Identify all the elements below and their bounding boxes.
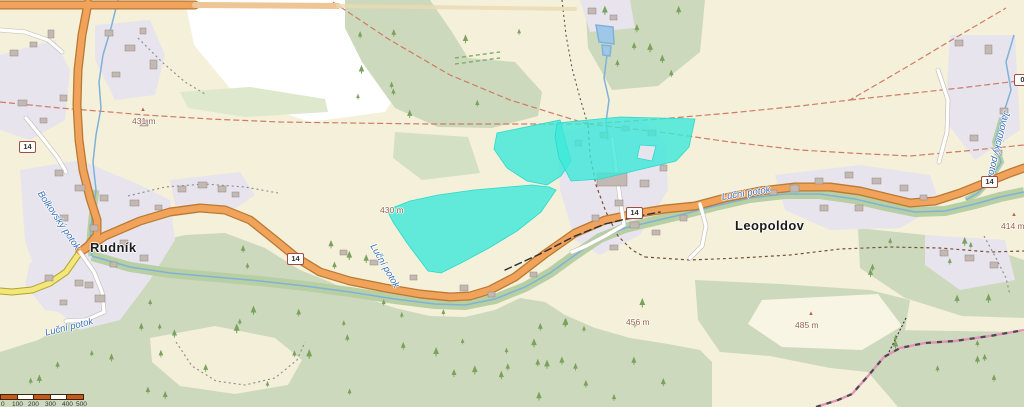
scale-label: 100: [12, 401, 23, 407]
building: [530, 272, 537, 277]
building: [40, 118, 47, 123]
map-render-layer: [0, 0, 1024, 407]
scale-label: 200: [28, 401, 39, 407]
building: [1000, 108, 1008, 114]
building: [660, 165, 667, 171]
building: [652, 230, 660, 235]
building: [815, 178, 823, 184]
building: [95, 295, 105, 302]
building: [100, 195, 108, 201]
scale-label: 400: [62, 401, 73, 407]
building: [75, 185, 85, 191]
building: [410, 275, 417, 280]
building: [232, 192, 239, 197]
building: [845, 172, 853, 178]
building: [75, 280, 83, 286]
road-ref-badge: 14: [287, 253, 304, 265]
building: [965, 255, 974, 261]
scale-label: 0: [1, 401, 5, 407]
building: [990, 262, 998, 268]
building: [610, 15, 617, 20]
building: [198, 182, 207, 188]
building: [820, 205, 828, 211]
road-ref-badge-clipped: 0: [1014, 74, 1024, 86]
scale-bar-segment: [51, 395, 68, 399]
building: [460, 285, 468, 291]
building: [85, 282, 93, 288]
building: [370, 260, 378, 265]
scale-bar-segment: [34, 395, 51, 399]
building: [45, 275, 53, 281]
building: [790, 185, 799, 192]
building: [30, 42, 37, 47]
building: [588, 8, 596, 14]
building: [60, 300, 67, 305]
scale-label: 500: [76, 401, 87, 407]
scale-bar-segment: [1, 395, 18, 399]
building: [140, 120, 148, 126]
building: [872, 178, 881, 184]
building: [112, 72, 120, 77]
building: [125, 45, 135, 51]
building: [900, 185, 908, 191]
map-canvas[interactable]: Rudník Leopoldov Bolkovský potok Luční p…: [0, 0, 1024, 407]
road-ref-badge: 14: [981, 176, 998, 188]
building: [488, 292, 495, 297]
building: [940, 250, 948, 256]
building: [640, 180, 649, 187]
building: [155, 205, 162, 210]
building: [995, 150, 1002, 155]
road-ref-badge: 14: [19, 141, 36, 153]
building: [178, 186, 186, 192]
building: [150, 60, 157, 69]
building: [610, 245, 618, 250]
building: [218, 186, 226, 192]
building: [855, 205, 863, 211]
building: [120, 240, 128, 246]
building: [110, 262, 117, 267]
scale-bar-segment: [67, 395, 83, 399]
scale-bar: [0, 394, 84, 400]
building: [985, 45, 992, 54]
building: [340, 250, 347, 255]
building: [770, 190, 777, 195]
building: [615, 200, 623, 206]
building: [140, 28, 146, 34]
building: [970, 135, 978, 141]
building: [680, 215, 687, 221]
building: [60, 215, 68, 221]
building: [592, 215, 599, 221]
road-ref-badge: 14: [626, 207, 643, 219]
building: [18, 100, 27, 106]
building: [130, 200, 139, 206]
building: [140, 255, 148, 261]
building: [630, 222, 639, 228]
building: [920, 195, 927, 200]
building: [105, 30, 113, 36]
building: [955, 40, 963, 46]
scale-bar-segment: [18, 395, 35, 399]
building: [90, 225, 98, 231]
building: [10, 50, 18, 56]
scale-label: 300: [45, 401, 56, 407]
building: [60, 95, 67, 101]
building: [48, 30, 54, 38]
building: [55, 170, 63, 176]
